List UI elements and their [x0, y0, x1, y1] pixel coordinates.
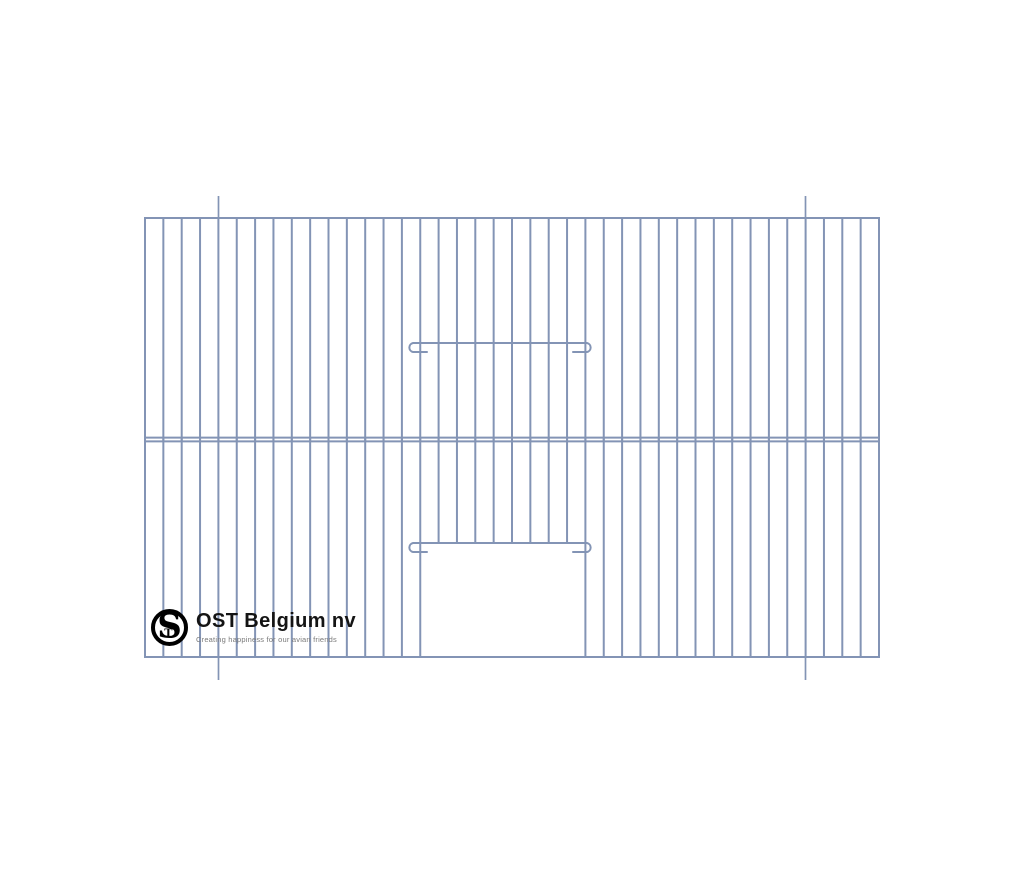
company-tagline: Creating happiness for our avian friends: [196, 635, 356, 644]
logo-monogram-t: T: [164, 627, 172, 638]
brand-logo: S T OST Belgium nv Creating happiness fo…: [151, 609, 356, 646]
company-name: OST Belgium nv: [196, 610, 356, 633]
cage-front-drawing: [0, 0, 1024, 878]
technical-drawing-canvas: S T OST Belgium nv Creating happiness fo…: [0, 0, 1024, 878]
ost-logo-mark-icon: S T: [151, 609, 188, 646]
brand-text: OST Belgium nv Creating happiness for ou…: [196, 609, 356, 644]
